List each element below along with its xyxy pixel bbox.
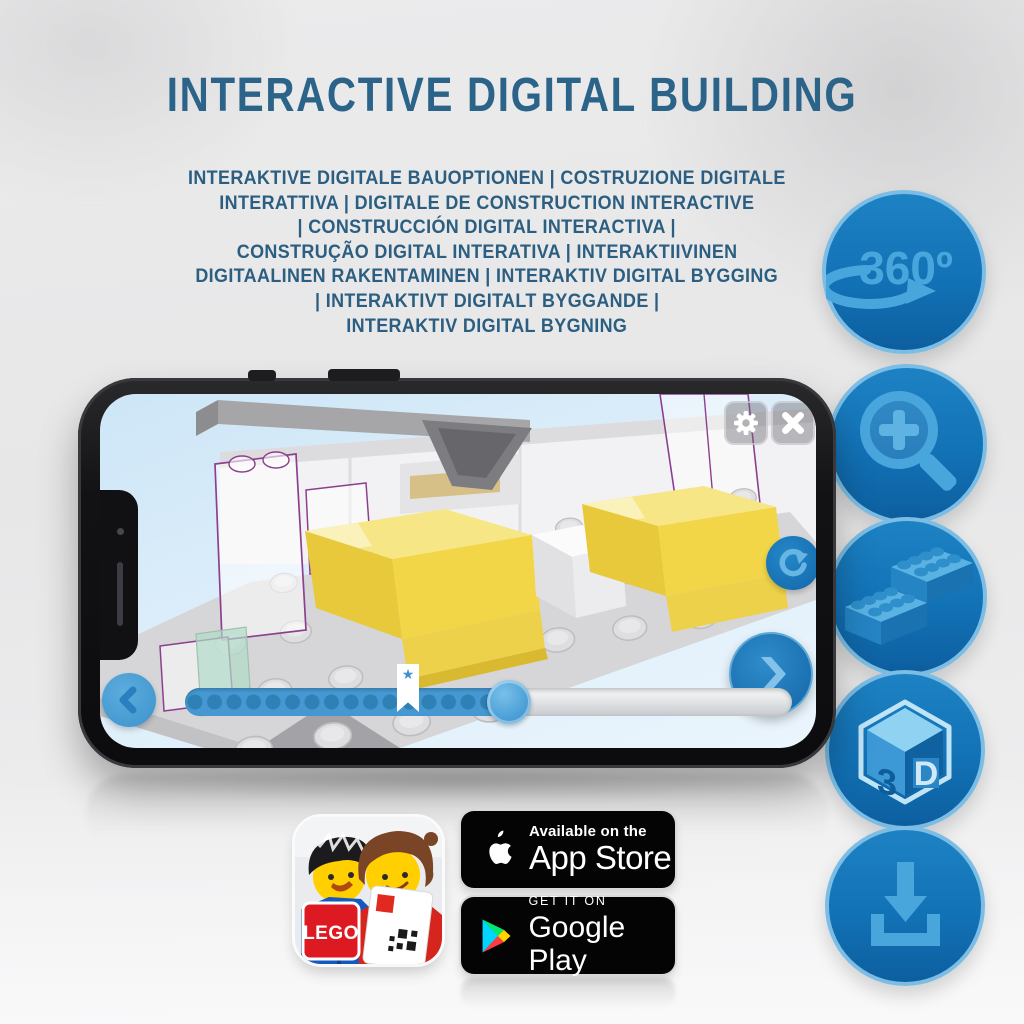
cube-d-label: D	[914, 755, 939, 793]
phone-reflection	[86, 774, 828, 854]
lego-app-icon[interactable]: LEGO	[295, 817, 442, 964]
google-play-badge[interactable]: GET IT ON Google Play	[461, 897, 675, 974]
google-play-tagline: GET IT ON	[528, 894, 675, 909]
app-screen: ★	[100, 394, 816, 748]
apple-icon	[476, 826, 516, 874]
zoom-in-icon	[827, 364, 987, 524]
download-icon	[825, 826, 985, 986]
app-store-tagline: Available on the	[529, 823, 671, 840]
speaker-slit	[117, 562, 123, 626]
360-label: 360º	[859, 242, 953, 294]
subtitle-line: INTERAKTIVE DIGITALE BAUOPTIONEN | COSTR…	[0, 166, 974, 191]
google-play-name: Google Play	[528, 911, 675, 977]
previous-step-button[interactable]	[102, 673, 156, 727]
badge-reflection	[461, 978, 675, 1008]
power-button	[328, 369, 400, 381]
lego-logo: LEGO	[303, 923, 359, 944]
app-store-name: App Store	[529, 840, 671, 876]
3d-cube-icon: 3 D	[825, 670, 985, 830]
volume-button	[248, 370, 276, 381]
page-title: INTERACTIVE DIGITAL BUILDING	[0, 68, 1024, 123]
rotate-view-button[interactable]	[766, 536, 816, 590]
progress-fill	[185, 688, 523, 716]
settings-button[interactable]	[724, 401, 768, 445]
camera-notch	[100, 490, 138, 660]
360-rotation-icon: 360º	[822, 190, 986, 354]
build-progress-slider[interactable]: ★	[185, 688, 792, 716]
front-camera	[117, 528, 124, 535]
close-icon[interactable]	[771, 401, 815, 445]
app-store-badge[interactable]: Available on the App Store	[461, 811, 675, 888]
slider-thumb[interactable]	[487, 680, 531, 724]
google-play-icon	[476, 912, 515, 960]
lego-brick-icon	[827, 517, 987, 677]
marketing-panel: INTERACTIVE DIGITAL BUILDING INTERAKTIVE…	[0, 0, 1024, 1024]
smartphone: ★	[78, 378, 836, 768]
cube-3-label: 3	[877, 760, 897, 805]
